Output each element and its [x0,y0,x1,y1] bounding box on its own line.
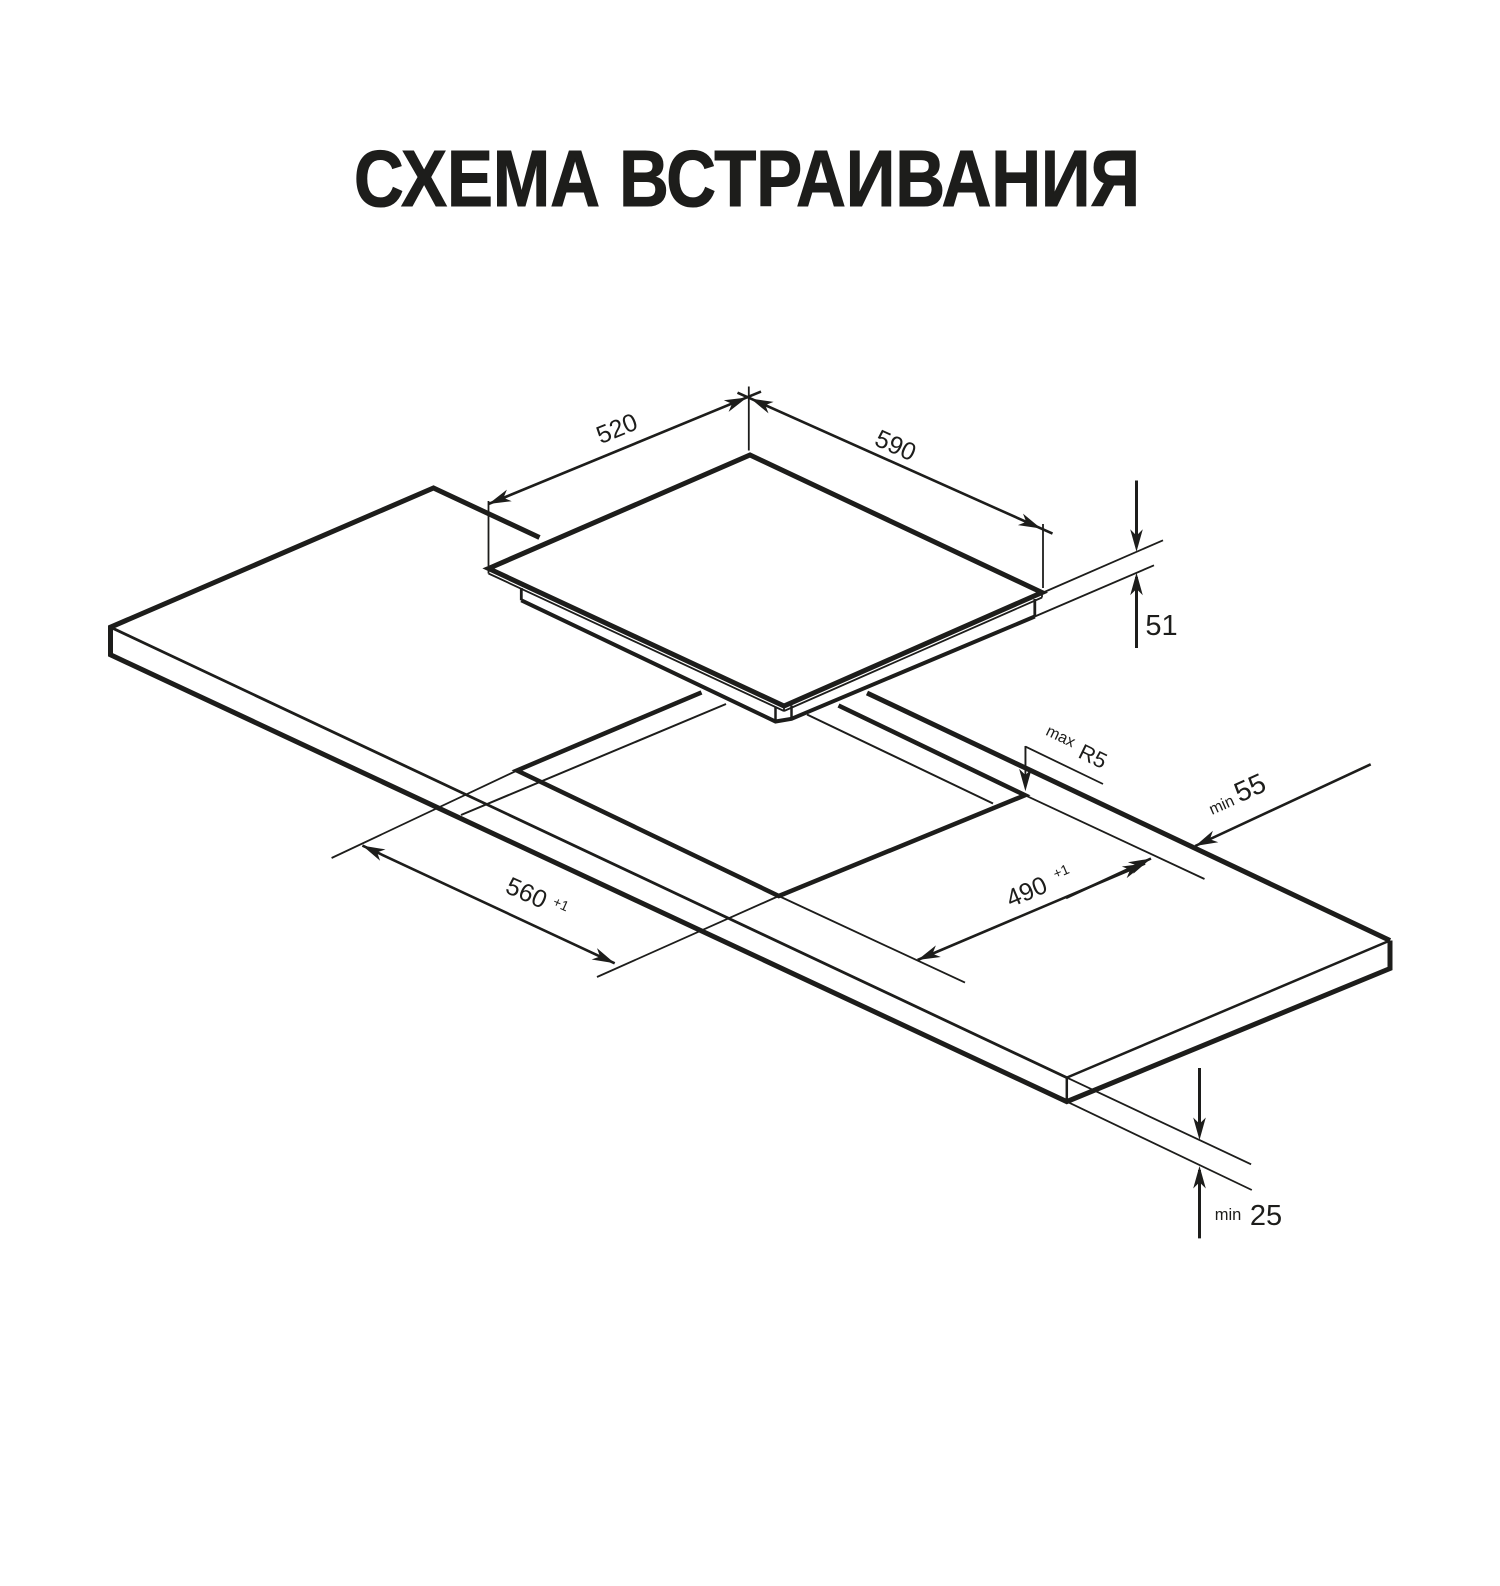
svg-text:СХЕМА ВСТРАИВАНИЯ: СХЕМА ВСТРАИВАНИЯ [354,134,1140,223]
svg-text:25: 25 [1250,1200,1282,1232]
svg-text:min: min [1215,1206,1242,1224]
svg-text:51: 51 [1145,610,1177,642]
